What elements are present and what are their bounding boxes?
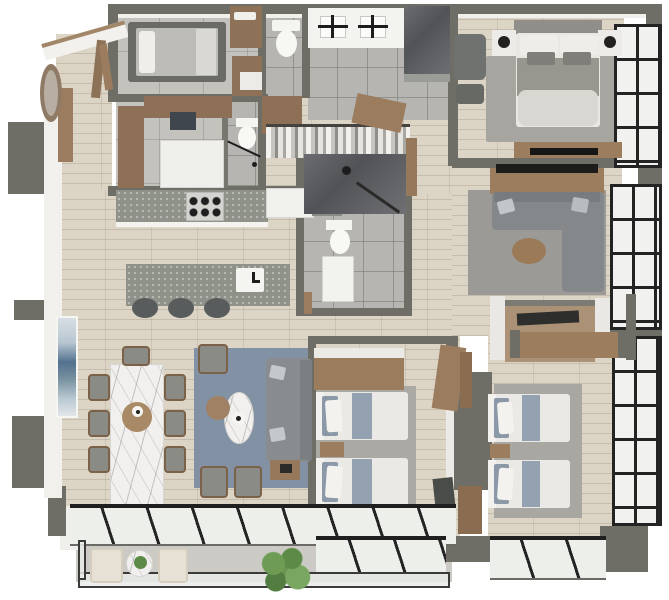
dining-jug-dot (136, 410, 140, 414)
master-accent-pillow-left (527, 52, 555, 65)
bed1-shelf-decor (234, 12, 256, 20)
window-bedroom4-east (612, 336, 662, 526)
ensuite-toilet-bowl (330, 229, 350, 254)
master-headboard (514, 20, 602, 34)
bed1-blanket (196, 29, 216, 75)
living-sofa-pillow-b (269, 427, 286, 442)
dining-chair-l2 (88, 410, 110, 437)
wc2-door-knob (252, 162, 257, 167)
living-armchair-b2 (234, 466, 262, 498)
entry-mirror-glass (44, 70, 58, 116)
bed3-b-pillow (325, 465, 343, 498)
corridor-door-panel (406, 138, 417, 196)
lamp-right (604, 36, 616, 48)
washing-machine (160, 140, 224, 188)
balcony-armchair-b (158, 548, 188, 583)
gas-hob (186, 192, 224, 221)
living-tray-cup (236, 416, 241, 421)
wall-art-blue (56, 316, 78, 418)
pillar-left-upper (8, 122, 46, 194)
living-sofa-back (300, 360, 312, 460)
desk-unit-left-panel (490, 296, 505, 360)
window-tvroom-east (610, 184, 662, 330)
living-coffee-wood (206, 396, 230, 420)
living-armchair-top (198, 344, 228, 374)
master-tv (530, 148, 598, 155)
bed4-console-cap-right (618, 330, 628, 358)
bed4-a-throw (522, 395, 540, 441)
balcony-armchair-a (90, 548, 123, 583)
mainbath-shower (404, 6, 450, 78)
balcony-plant-large (256, 546, 314, 596)
bed4-b-throw (522, 461, 540, 507)
bed4-console (520, 332, 620, 358)
bar-stool-3 (204, 298, 230, 318)
master-armchair (454, 34, 486, 80)
mainbath-faucet-b-v (371, 15, 374, 38)
bar-stool-2 (168, 298, 194, 318)
ensuite-showerhead (342, 166, 351, 175)
bed3-a-throw (352, 393, 372, 439)
mainbath-shower-base (404, 74, 450, 82)
island-faucet-spout (252, 280, 260, 283)
bed4-console-cap-left (510, 330, 520, 358)
window-bedroom4-south (490, 536, 606, 580)
pillar-left-lower (12, 416, 48, 488)
bed3-dresser-top (314, 348, 404, 358)
bed1-pillow (139, 31, 155, 73)
bar-stool-1 (132, 298, 158, 318)
dining-chair-l1 (88, 374, 110, 401)
dining-chair-r1 (164, 374, 186, 401)
living-sofa-pillow-a (269, 365, 286, 381)
bed3-nightstand (320, 442, 344, 457)
wall-bedroom3-north (308, 336, 450, 344)
bed4-nightstand (490, 444, 510, 458)
living-side-table-obj (280, 464, 292, 473)
dining-chair-r3 (164, 446, 186, 473)
dining-chair-r2 (164, 410, 186, 437)
bath1-toilet-bowl (276, 30, 297, 57)
bed3-b-throw (352, 459, 372, 505)
sofa-pillow-b (571, 197, 589, 214)
tvroom-tv (496, 164, 598, 173)
dining-table (110, 364, 164, 508)
dining-chair-top (122, 346, 150, 366)
balcony-balustrade-left (78, 540, 86, 580)
bed3-a-pillow (325, 399, 343, 432)
bed3-desk-panel (460, 352, 472, 408)
kitchen-cabinet-face (116, 222, 268, 227)
ensuite-vanity (322, 256, 354, 302)
wall-ensuite-west (296, 148, 304, 316)
pillar-left-mid (14, 300, 48, 320)
laundry-side-cabinet (118, 106, 144, 188)
living-armchair-b1 (200, 466, 228, 498)
bed3-dresser (314, 358, 404, 390)
master-blanket (518, 90, 598, 126)
window-bedroom3-south (316, 536, 446, 574)
bed3-cabinet (458, 486, 482, 534)
bed1-dresser (240, 72, 262, 90)
balcony-table-plant (134, 556, 147, 569)
bed4-a-pillow (497, 402, 514, 435)
laundry-sink (170, 112, 196, 130)
ensuite-door (304, 292, 312, 314)
bed4-b-pillow (497, 468, 514, 501)
master-accent-pillow-right (563, 52, 591, 65)
floor-plan (0, 0, 669, 600)
mainbath-faucet-a-v (331, 15, 334, 38)
dining-chair-l3 (88, 446, 110, 473)
lamp-left (498, 36, 510, 48)
wall-corner-se-block (600, 526, 648, 572)
master-ottoman (456, 84, 484, 104)
wall-ensuite-south (296, 308, 412, 316)
tvroom-coffee-table (512, 238, 546, 264)
